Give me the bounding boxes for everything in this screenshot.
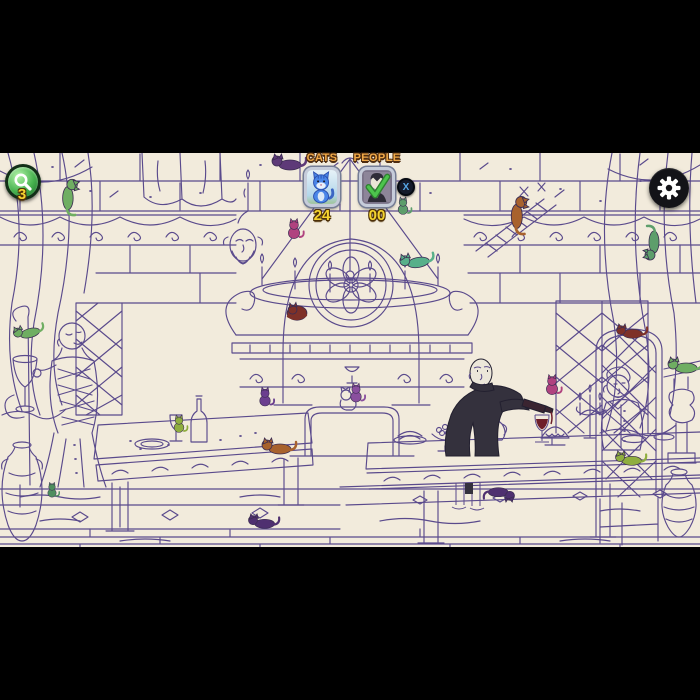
people-counter: PEOPLE 00 [352,152,402,224]
cats-counter: CATS 24 [297,152,347,224]
settings-button[interactable] [649,168,689,208]
people-counter-value: 00 [369,208,386,224]
cats-counter-label: CATS [307,152,338,165]
game-scene[interactable] [0,153,700,547]
scene-illustration[interactable] [0,153,700,547]
cats-counter-value: 24 [314,208,331,224]
blue-cat-icon [304,167,340,207]
gear-icon [657,176,681,200]
people-dismiss-button[interactable]: X [397,178,415,196]
game-stage: 3 CATS 24 [0,0,700,700]
people-counter-label: PEOPLE [353,152,400,165]
hint-count: 3 [11,186,33,203]
vampire-portrait-icon [359,167,395,207]
